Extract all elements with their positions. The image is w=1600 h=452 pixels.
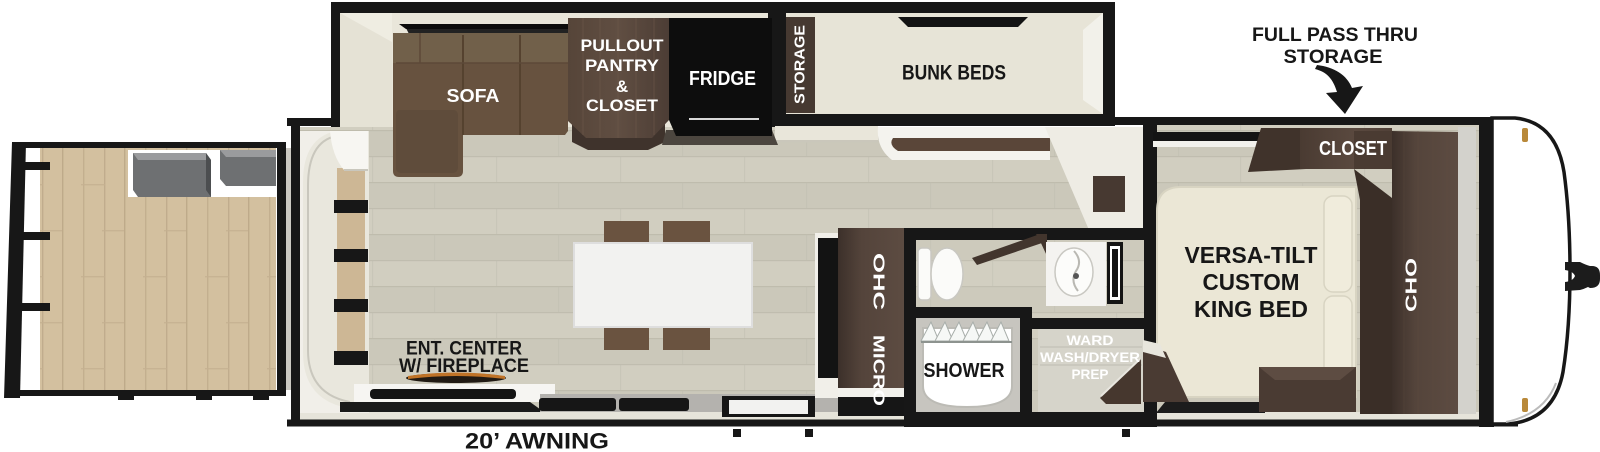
svg-text:SOFA: SOFA [447,86,500,106]
svg-text:WASH/DRYER: WASH/DRYER [1040,349,1140,365]
svg-text:CUSTOM: CUSTOM [1203,269,1300,295]
svg-text:W/ FIREPLACE: W/ FIREPLACE [399,356,529,377]
svg-text:WARD: WARD [1067,332,1114,348]
svg-text:OHC: OHC [870,253,887,311]
svg-text:20’ AWNING: 20’ AWNING [465,429,609,452]
svg-text:PANTRY: PANTRY [585,56,660,75]
svg-text:BUNK BEDS: BUNK BEDS [902,62,1006,85]
svg-text:MICRO: MICRO [870,335,887,406]
svg-text:FRIDGE: FRIDGE [689,68,756,90]
svg-text:CLOSET: CLOSET [1319,138,1387,160]
svg-text:PREP: PREP [1072,366,1109,382]
svg-text:PULLOUT: PULLOUT [581,36,665,55]
svg-text:&: & [616,77,628,96]
svg-text:STORAGE: STORAGE [792,25,809,104]
svg-text:CHO: CHO [1404,258,1421,312]
svg-text:SHOWER: SHOWER [924,360,1006,382]
svg-text:FULL PASS THRU: FULL PASS THRU [1252,25,1418,46]
svg-text:STORAGE: STORAGE [1284,47,1383,68]
svg-text:KING BED: KING BED [1194,296,1308,322]
svg-text:CLOSET: CLOSET [586,96,659,115]
svg-text:VERSA-TILT: VERSA-TILT [1185,242,1319,268]
